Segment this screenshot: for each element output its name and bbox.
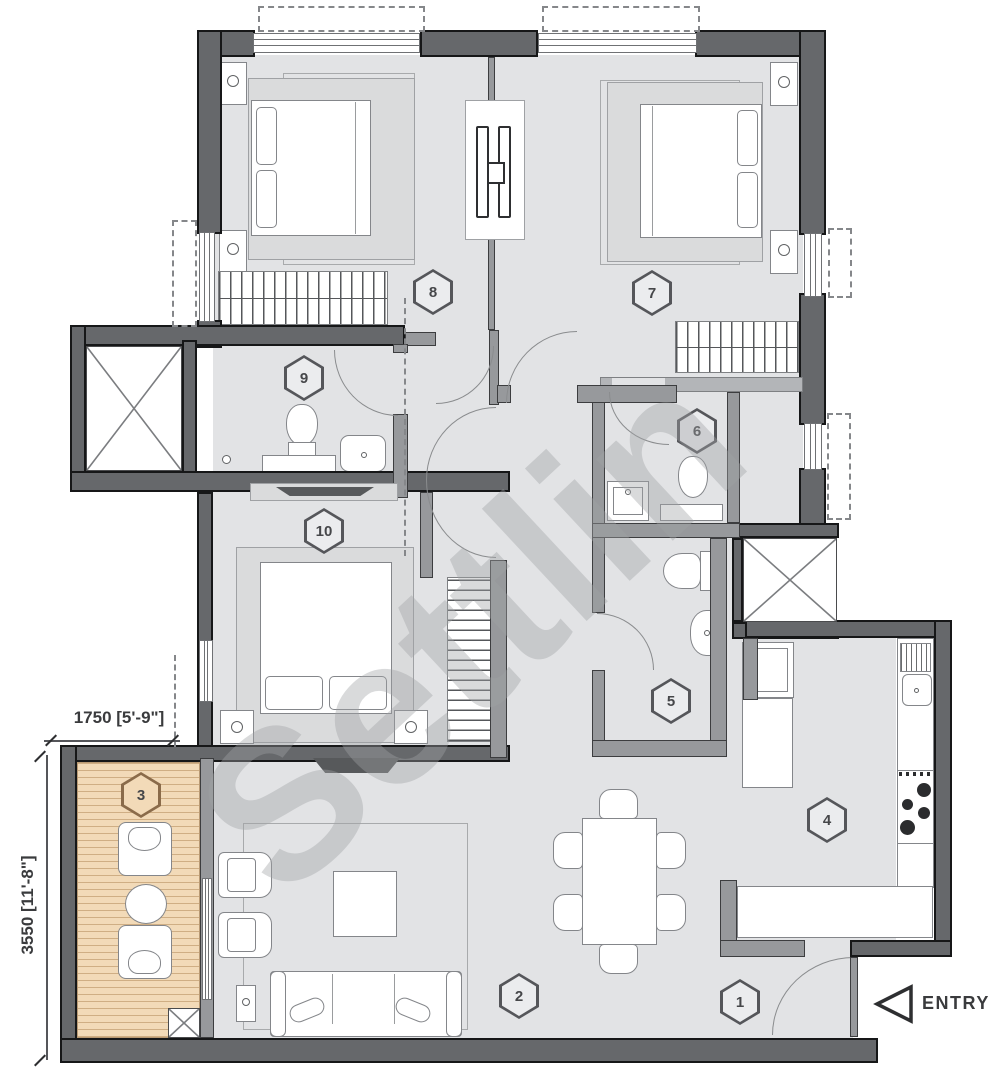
- partition-wall: [592, 670, 605, 742]
- dashed-projection: [172, 220, 197, 327]
- pillow: [256, 170, 277, 228]
- floor-lamp-bulb: [242, 998, 250, 1006]
- kitchen-counter-left: [742, 698, 793, 788]
- dining-chair: [599, 789, 638, 819]
- pillow: [329, 676, 387, 710]
- bedroom7-wardrobe: [675, 321, 799, 373]
- balcony-chair-back: [128, 827, 161, 851]
- window: [199, 640, 213, 702]
- sofa-armrest: [270, 971, 286, 1037]
- window: [199, 232, 215, 322]
- shaft-x-icon: [87, 347, 181, 470]
- kitchen-counter-bottom: [737, 886, 933, 938]
- wall: [60, 1038, 878, 1063]
- bathroom-counter: [660, 504, 723, 521]
- bedroom8-wardrobe: [218, 271, 388, 325]
- pocket-door-latch: [487, 162, 505, 184]
- shower-icon: [222, 455, 231, 464]
- wall-entry-top: [850, 940, 952, 957]
- burner-icon: [900, 820, 915, 835]
- sofa-seat-line: [394, 974, 395, 1024]
- wall: [197, 30, 222, 234]
- dashed-line: [174, 655, 176, 747]
- entry-door-leaf: [850, 957, 858, 1037]
- balcony-round-table: [125, 884, 167, 924]
- pillow: [265, 676, 323, 710]
- bedroom10-wardrobe: [447, 577, 492, 742]
- window: [538, 33, 697, 53]
- floor-plan: 8 7 9 10 6 5 4 3 2 1 1750 [5'-9"] 3550 […: [0, 0, 995, 1080]
- dimension-line: [46, 755, 48, 1060]
- armchair: [218, 852, 272, 898]
- room-label-7: 7: [632, 270, 672, 316]
- dimension-balcony-width: 1750 [5'-9"]: [56, 708, 182, 728]
- sofa-seat-line: [332, 974, 333, 1024]
- window: [804, 423, 822, 470]
- dashed-projection: [827, 413, 851, 520]
- faucet-icon: [361, 452, 367, 458]
- dimension-tick: [34, 750, 46, 762]
- wall: [60, 745, 77, 1063]
- lamp-icon: [778, 76, 790, 88]
- wall-kitchen-top: [745, 620, 952, 638]
- toilet-icon: [286, 404, 318, 446]
- burner-icon: [917, 783, 931, 797]
- lamp-icon: [227, 243, 239, 255]
- armchair-back: [227, 918, 256, 951]
- dashed-line: [404, 298, 406, 556]
- partition-wall: [592, 740, 727, 757]
- lamp-icon: [778, 244, 790, 256]
- shaft-x-icon: [744, 539, 836, 621]
- dining-chair: [656, 832, 686, 869]
- lamp-icon: [405, 721, 417, 733]
- balcony-chair: [118, 925, 172, 979]
- balcony-chair-back: [128, 950, 161, 974]
- partition-wall: [592, 523, 740, 538]
- sofa-armrest: [446, 971, 462, 1037]
- room-label-8: 8: [413, 269, 453, 315]
- pillow: [256, 107, 277, 165]
- shaft-x-icon: [169, 1009, 199, 1037]
- service-shaft: [86, 346, 182, 471]
- dining-chair: [553, 894, 583, 931]
- balcony-drain-box: [168, 1008, 200, 1038]
- room-label-2: 2: [499, 973, 539, 1019]
- partition-wall: [727, 392, 740, 523]
- window: [804, 233, 822, 297]
- balcony-chair: [118, 822, 172, 876]
- lamp-icon: [227, 75, 239, 87]
- room-label-3: 3: [121, 772, 161, 818]
- dining-chair: [599, 944, 638, 974]
- pillow: [737, 110, 758, 166]
- dashed-projection: [828, 228, 852, 298]
- window: [253, 33, 420, 53]
- toilet-icon: [678, 456, 708, 498]
- room-label-6: 6: [677, 408, 717, 454]
- burner-icon: [918, 807, 930, 819]
- dimension-tick: [34, 1054, 46, 1066]
- dashed-projection: [542, 6, 700, 32]
- wall: [799, 30, 826, 235]
- wall: [70, 325, 86, 492]
- mattress-fold-line: [652, 106, 653, 236]
- partition-wall: [710, 538, 727, 757]
- burner-icon: [902, 799, 913, 810]
- hob-knobs: [899, 772, 932, 776]
- faucet-icon: [625, 489, 631, 495]
- wall: [182, 340, 197, 480]
- wall: [60, 745, 510, 762]
- entry-label: ENTRY: [922, 993, 990, 1014]
- partition-wall: [743, 638, 758, 700]
- entry-arrow-icon: [871, 982, 915, 1026]
- dimension-line: [44, 740, 180, 742]
- tv-icon: [276, 487, 374, 496]
- dashed-projection: [258, 6, 425, 32]
- service-shaft: [743, 538, 837, 622]
- dining-chair: [656, 894, 686, 931]
- wall-kitchen-right: [934, 620, 952, 945]
- wall: [720, 940, 805, 957]
- dining-chair: [553, 832, 583, 869]
- partition-wall: [405, 332, 436, 346]
- lamp-icon: [231, 721, 243, 733]
- drain-dot: [914, 688, 919, 693]
- partition-wall: [490, 560, 507, 758]
- wall-shaft-side: [732, 538, 743, 622]
- room-label-10: 10: [304, 508, 344, 554]
- wall: [799, 293, 826, 425]
- room-label-9: 9: [284, 355, 324, 401]
- tv-icon: [313, 758, 400, 773]
- wall-shaft-top: [732, 523, 839, 538]
- balcony-slider-glass: [202, 878, 212, 1000]
- coffee-table: [333, 871, 397, 937]
- wall: [70, 325, 405, 346]
- room-label-1: 1: [720, 979, 760, 1025]
- armchair: [218, 912, 272, 958]
- dining-table: [582, 818, 657, 945]
- dimension-balcony-depth: 3550 [11'-8"]: [18, 840, 38, 970]
- pillow: [737, 172, 758, 228]
- mattress-fold-line: [355, 102, 356, 234]
- toilet-icon: [663, 553, 701, 589]
- sink-drainboard: [900, 643, 931, 672]
- room-label-4: 4: [807, 797, 847, 843]
- partition-wall: [592, 392, 605, 613]
- wall: [197, 492, 213, 758]
- wall: [420, 30, 538, 57]
- room-label-5: 5: [651, 678, 691, 724]
- armchair-back: [227, 858, 256, 891]
